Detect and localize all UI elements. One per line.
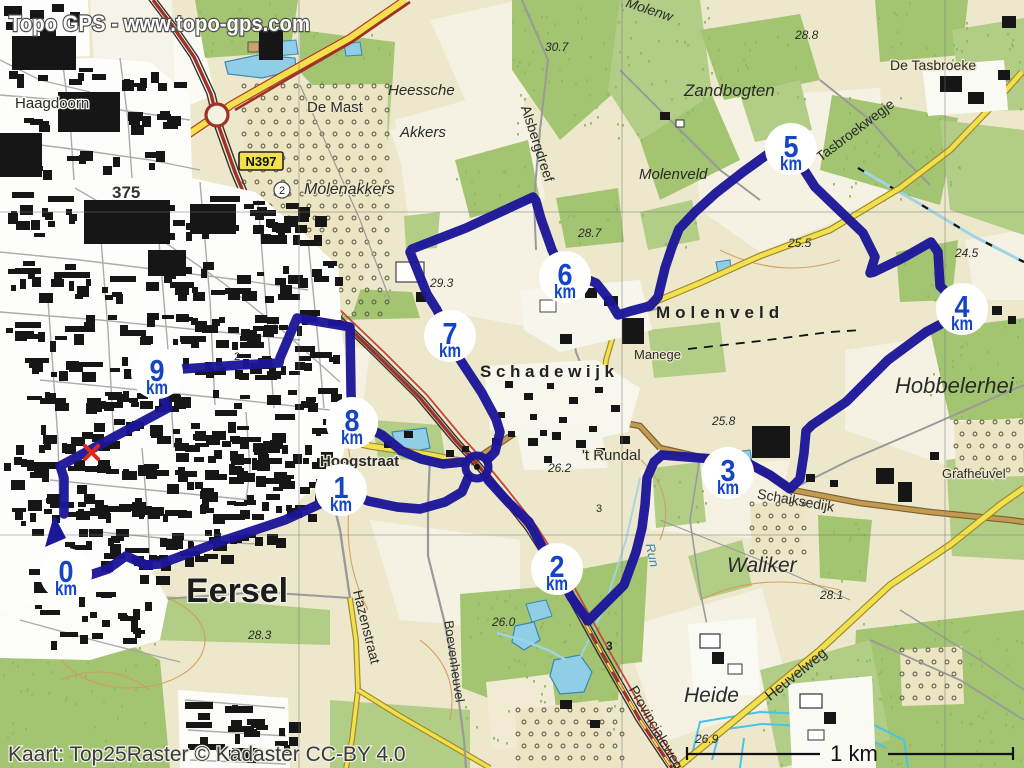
svg-text:30.7: 30.7 (545, 40, 570, 54)
svg-text:28.1: 28.1 (819, 588, 843, 602)
svg-text:28.3: 28.3 (247, 628, 272, 642)
svg-text:Heessche: Heessche (388, 82, 455, 99)
svg-text:Waliker: Waliker (727, 554, 798, 577)
svg-text:Kaart: Top25Raster © Kadaster: Kaart: Top25Raster © Kadaster CC-BY 4.0 (8, 743, 406, 766)
svg-text:375: 375 (112, 183, 140, 202)
svg-text:Molenakkers: Molenakkers (304, 181, 395, 198)
svg-text:3: 3 (606, 639, 613, 653)
svg-text:Heide: Heide (684, 684, 739, 707)
svg-text:Zandbogten: Zandbogten (683, 81, 775, 100)
svg-text:28.7: 28.7 (577, 226, 603, 240)
svg-text:25.5: 25.5 (787, 236, 812, 250)
svg-text:Haagdoorn: Haagdoorn (15, 95, 89, 112)
svg-text:km: km (341, 428, 363, 449)
svg-text:De Tasbroeke: De Tasbroeke (890, 57, 976, 73)
svg-text:Hobbelerhei: Hobbelerhei (895, 373, 1015, 398)
svg-text:26.2: 26.2 (547, 461, 572, 475)
svg-text:1 km: 1 km (830, 741, 878, 766)
svg-text:Manege: Manege (634, 347, 681, 362)
svg-text:km: km (330, 495, 352, 516)
svg-text:km: km (439, 341, 461, 362)
svg-text:km: km (717, 478, 739, 499)
svg-text:Schadewijk: Schadewijk (480, 362, 619, 381)
svg-text:km: km (546, 574, 568, 595)
svg-text:km: km (951, 314, 973, 335)
svg-text:Grafheuvel: Grafheuvel (942, 466, 1006, 481)
svg-text:24.5: 24.5 (954, 246, 979, 260)
svg-text:Eersel: Eersel (186, 572, 288, 610)
svg-text:29.3: 29.3 (429, 276, 454, 290)
svg-text:Molenveld: Molenveld (639, 166, 708, 183)
svg-text:km: km (55, 579, 77, 600)
svg-text:Molenveld: Molenveld (656, 303, 784, 322)
svg-text:Akkers: Akkers (399, 124, 446, 141)
svg-text:km: km (146, 378, 168, 399)
svg-text:De Mast: De Mast (307, 99, 364, 116)
svg-text:25.8: 25.8 (711, 414, 736, 428)
svg-text:Topo GPS - www.topo-gps.com: Topo GPS - www.topo-gps.com (9, 11, 310, 36)
svg-text:km: km (554, 282, 576, 303)
svg-text:28.8: 28.8 (794, 28, 819, 42)
svg-text:'t Rundal: 't Rundal (582, 447, 641, 464)
svg-text:2: 2 (279, 185, 285, 197)
svg-text:N397: N397 (245, 154, 276, 169)
svg-text:km: km (780, 154, 802, 175)
svg-text:26.0: 26.0 (491, 615, 516, 629)
svg-text:3: 3 (596, 503, 602, 515)
svg-text:26.9: 26.9 (694, 732, 719, 746)
